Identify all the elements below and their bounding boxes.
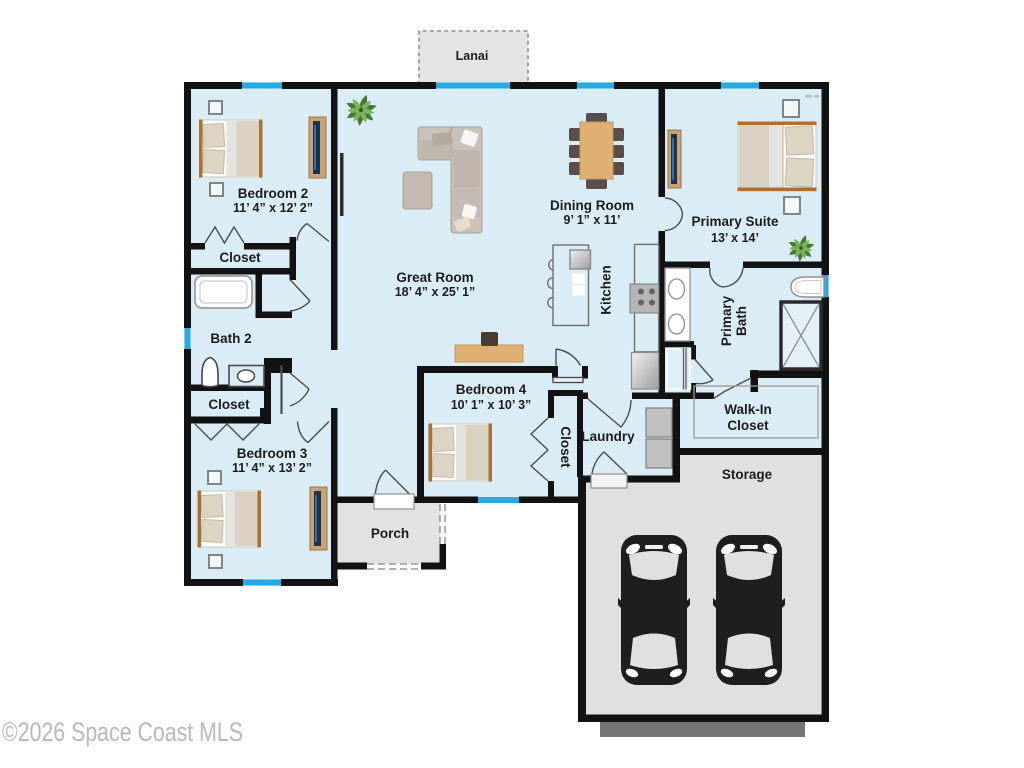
svg-text:18’ 4” x 25’ 1”: 18’ 4” x 25’ 1” xyxy=(395,285,476,299)
svg-text:Laundry: Laundry xyxy=(581,429,635,444)
svg-text:Porch: Porch xyxy=(371,526,409,541)
svg-text:10’ 1” x 10’ 3”: 10’ 1” x 10’ 3” xyxy=(451,398,532,412)
svg-text:Closet: Closet xyxy=(558,426,573,468)
svg-text:Bedroom 4: Bedroom 4 xyxy=(456,382,527,397)
svg-text:Lanai: Lanai xyxy=(456,49,489,63)
svg-text:Closet: Closet xyxy=(727,418,769,433)
svg-text:13’ x 14’: 13’ x 14’ xyxy=(711,231,759,245)
svg-text:Bedroom 3: Bedroom 3 xyxy=(237,446,308,461)
svg-text:Bath: Bath xyxy=(734,306,749,336)
svg-text:9’ 1” x 11’: 9’ 1” x 11’ xyxy=(564,213,621,227)
svg-text:Kitchen: Kitchen xyxy=(599,265,614,315)
svg-text:Walk-In: Walk-In xyxy=(724,402,772,417)
svg-text:Closet: Closet xyxy=(219,250,261,265)
svg-text:Bath 2: Bath 2 xyxy=(210,331,251,346)
svg-text:Bedroom 2: Bedroom 2 xyxy=(238,186,309,201)
svg-text:Primary: Primary xyxy=(719,295,734,346)
svg-text:Great Room: Great Room xyxy=(396,270,473,285)
svg-text:Primary Suite: Primary Suite xyxy=(691,214,779,229)
svg-text:Storage: Storage xyxy=(722,467,773,482)
svg-text:©2026 Space Coast MLS: ©2026 Space Coast MLS xyxy=(2,717,243,747)
svg-text:Closet: Closet xyxy=(208,397,250,412)
svg-text:11’ 4” x 13’ 2”: 11’ 4” x 13’ 2” xyxy=(232,461,312,475)
svg-text:11’ 4” x 12’ 2”: 11’ 4” x 12’ 2” xyxy=(233,201,313,215)
svg-text:Dining Room: Dining Room xyxy=(550,198,634,213)
